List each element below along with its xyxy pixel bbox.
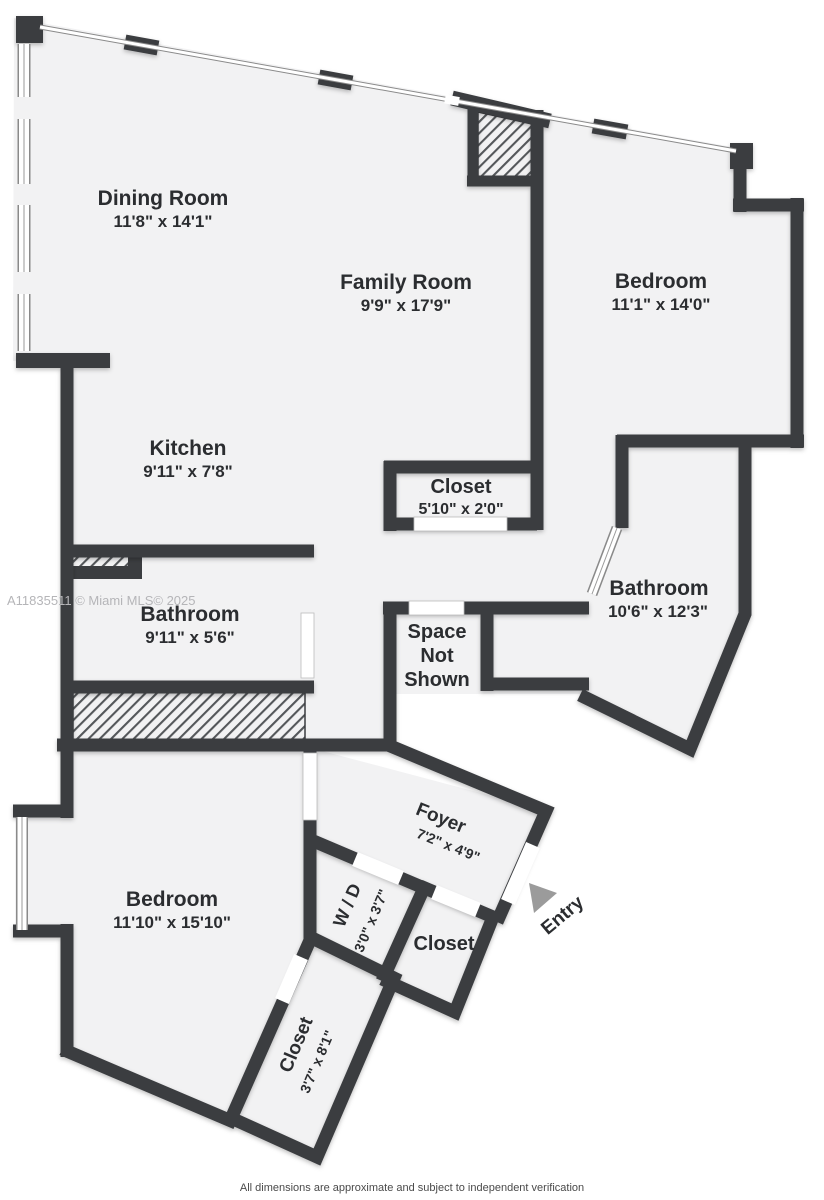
door-closet-hall [414, 517, 507, 531]
door-gap-top-band [445, 99, 459, 102]
wall-corner-top-right [730, 143, 753, 169]
label-bathroom-2: Bathroom 10'6" x 12'3" [608, 577, 709, 621]
sns-line-2: Not [420, 645, 454, 667]
label-bedroom-1: Bedroom 11'1" x 14'0" [612, 270, 711, 314]
bathroom-2-name: Bathroom [609, 577, 708, 600]
kitchen-name: Kitchen [149, 437, 226, 460]
bedroom-1-dims: 11'1" x 14'0" [612, 295, 711, 314]
disclaimer-text: All dimensions are approximate and subje… [240, 1182, 584, 1194]
label-closet-entry: Closet [413, 933, 474, 955]
hatch-band-bedroom [73, 692, 305, 741]
closet-hall-dims: 5'10" x 2'0" [418, 501, 503, 518]
door-space-not-shown [409, 601, 464, 615]
kitchen-dims: 9'11" x 7'8" [143, 462, 232, 481]
bedroom-2-dims: 11'10" x 15'10" [113, 913, 231, 932]
family-room-dims: 9'9" x 17'9" [361, 296, 451, 315]
mls-watermark: A11835511 © Miami MLS© 2025 [7, 593, 196, 608]
wall-corner-top-left [16, 16, 43, 43]
bedroom-1-name: Bedroom [615, 270, 707, 293]
floorplan-drawing: Dining Room 11'8" x 14'1" Family Room 9'… [0, 0, 824, 1200]
floorplan-page: Dining Room 11'8" x 14'1" Family Room 9'… [0, 0, 824, 1200]
entry-arrow-icon [529, 883, 557, 913]
door-foyer-bedroom2 [303, 753, 317, 820]
label-bathroom-1: Bathroom 9'11" x 5'6" [140, 603, 239, 647]
label-kitchen: Kitchen 9'11" x 7'8" [143, 437, 232, 481]
closet-entry-name: Closet [413, 933, 474, 955]
dining-room-dims: 11'8" x 14'1" [114, 212, 213, 231]
dining-room-name: Dining Room [98, 187, 229, 210]
bathroom-2-dims: 10'6" x 12'3" [608, 602, 708, 621]
bathroom-1-dims: 9'11" x 5'6" [145, 628, 234, 647]
label-dining-room: Dining Room 11'8" x 14'1" [98, 187, 229, 231]
sns-line-3: Shown [404, 669, 470, 691]
wall-stub-dining [16, 353, 110, 368]
door-bathroom-1 [301, 613, 314, 678]
bedroom-2-name: Bedroom [126, 888, 218, 911]
label-bedroom-2: Bedroom 11'10" x 15'10" [113, 888, 231, 932]
label-closet-hall: Closet 5'10" x 2'0" [418, 476, 503, 518]
closet-hall-name: Closet [430, 476, 491, 498]
sns-line-1: Space [408, 621, 467, 643]
family-room-name: Family Room [340, 271, 472, 294]
